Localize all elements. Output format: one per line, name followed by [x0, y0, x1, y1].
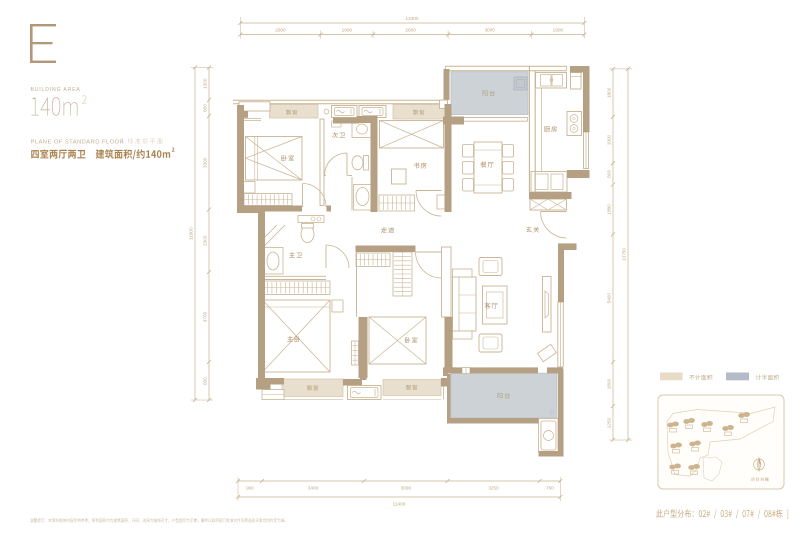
svg-text:1800: 1800 [607, 87, 612, 98]
svg-text:1800: 1800 [607, 378, 612, 389]
svg-text:3400: 3400 [308, 486, 319, 491]
svg-text:1900: 1900 [607, 134, 612, 145]
svg-text:900: 900 [246, 486, 254, 491]
svg-text:1900: 1900 [342, 28, 353, 33]
svg-text:1900: 1900 [553, 28, 564, 33]
svg-text:PLANE OF STANDARD FLOOR: PLANE OF STANDARD FLOOR [31, 140, 125, 146]
svg-text:2900: 2900 [275, 28, 286, 33]
svg-text:600: 600 [203, 377, 208, 385]
svg-text:1880: 1880 [607, 204, 612, 215]
svg-text:3250: 3250 [488, 486, 499, 491]
svg-text:800: 800 [607, 170, 612, 178]
svg-text:750: 750 [546, 486, 554, 491]
svg-text:11400: 11400 [393, 502, 406, 507]
svg-text:3300: 3300 [203, 157, 208, 168]
svg-text:3000: 3000 [401, 486, 412, 491]
svg-text:5400: 5400 [607, 293, 612, 304]
svg-text:1300: 1300 [203, 78, 208, 89]
svg-text:12300: 12300 [405, 16, 418, 21]
svg-text:2300: 2300 [203, 235, 208, 246]
svg-text:13750: 13750 [622, 248, 627, 261]
svg-text:11800: 11800 [189, 227, 194, 240]
svg-text:3000: 3000 [485, 28, 496, 33]
svg-text:1250: 1250 [607, 417, 612, 428]
svg-text:2600: 2600 [405, 28, 416, 33]
svg-text:600: 600 [203, 104, 208, 112]
svg-text:BUILDING AREA: BUILDING AREA [31, 87, 81, 93]
svg-text:3700: 3700 [203, 311, 208, 322]
